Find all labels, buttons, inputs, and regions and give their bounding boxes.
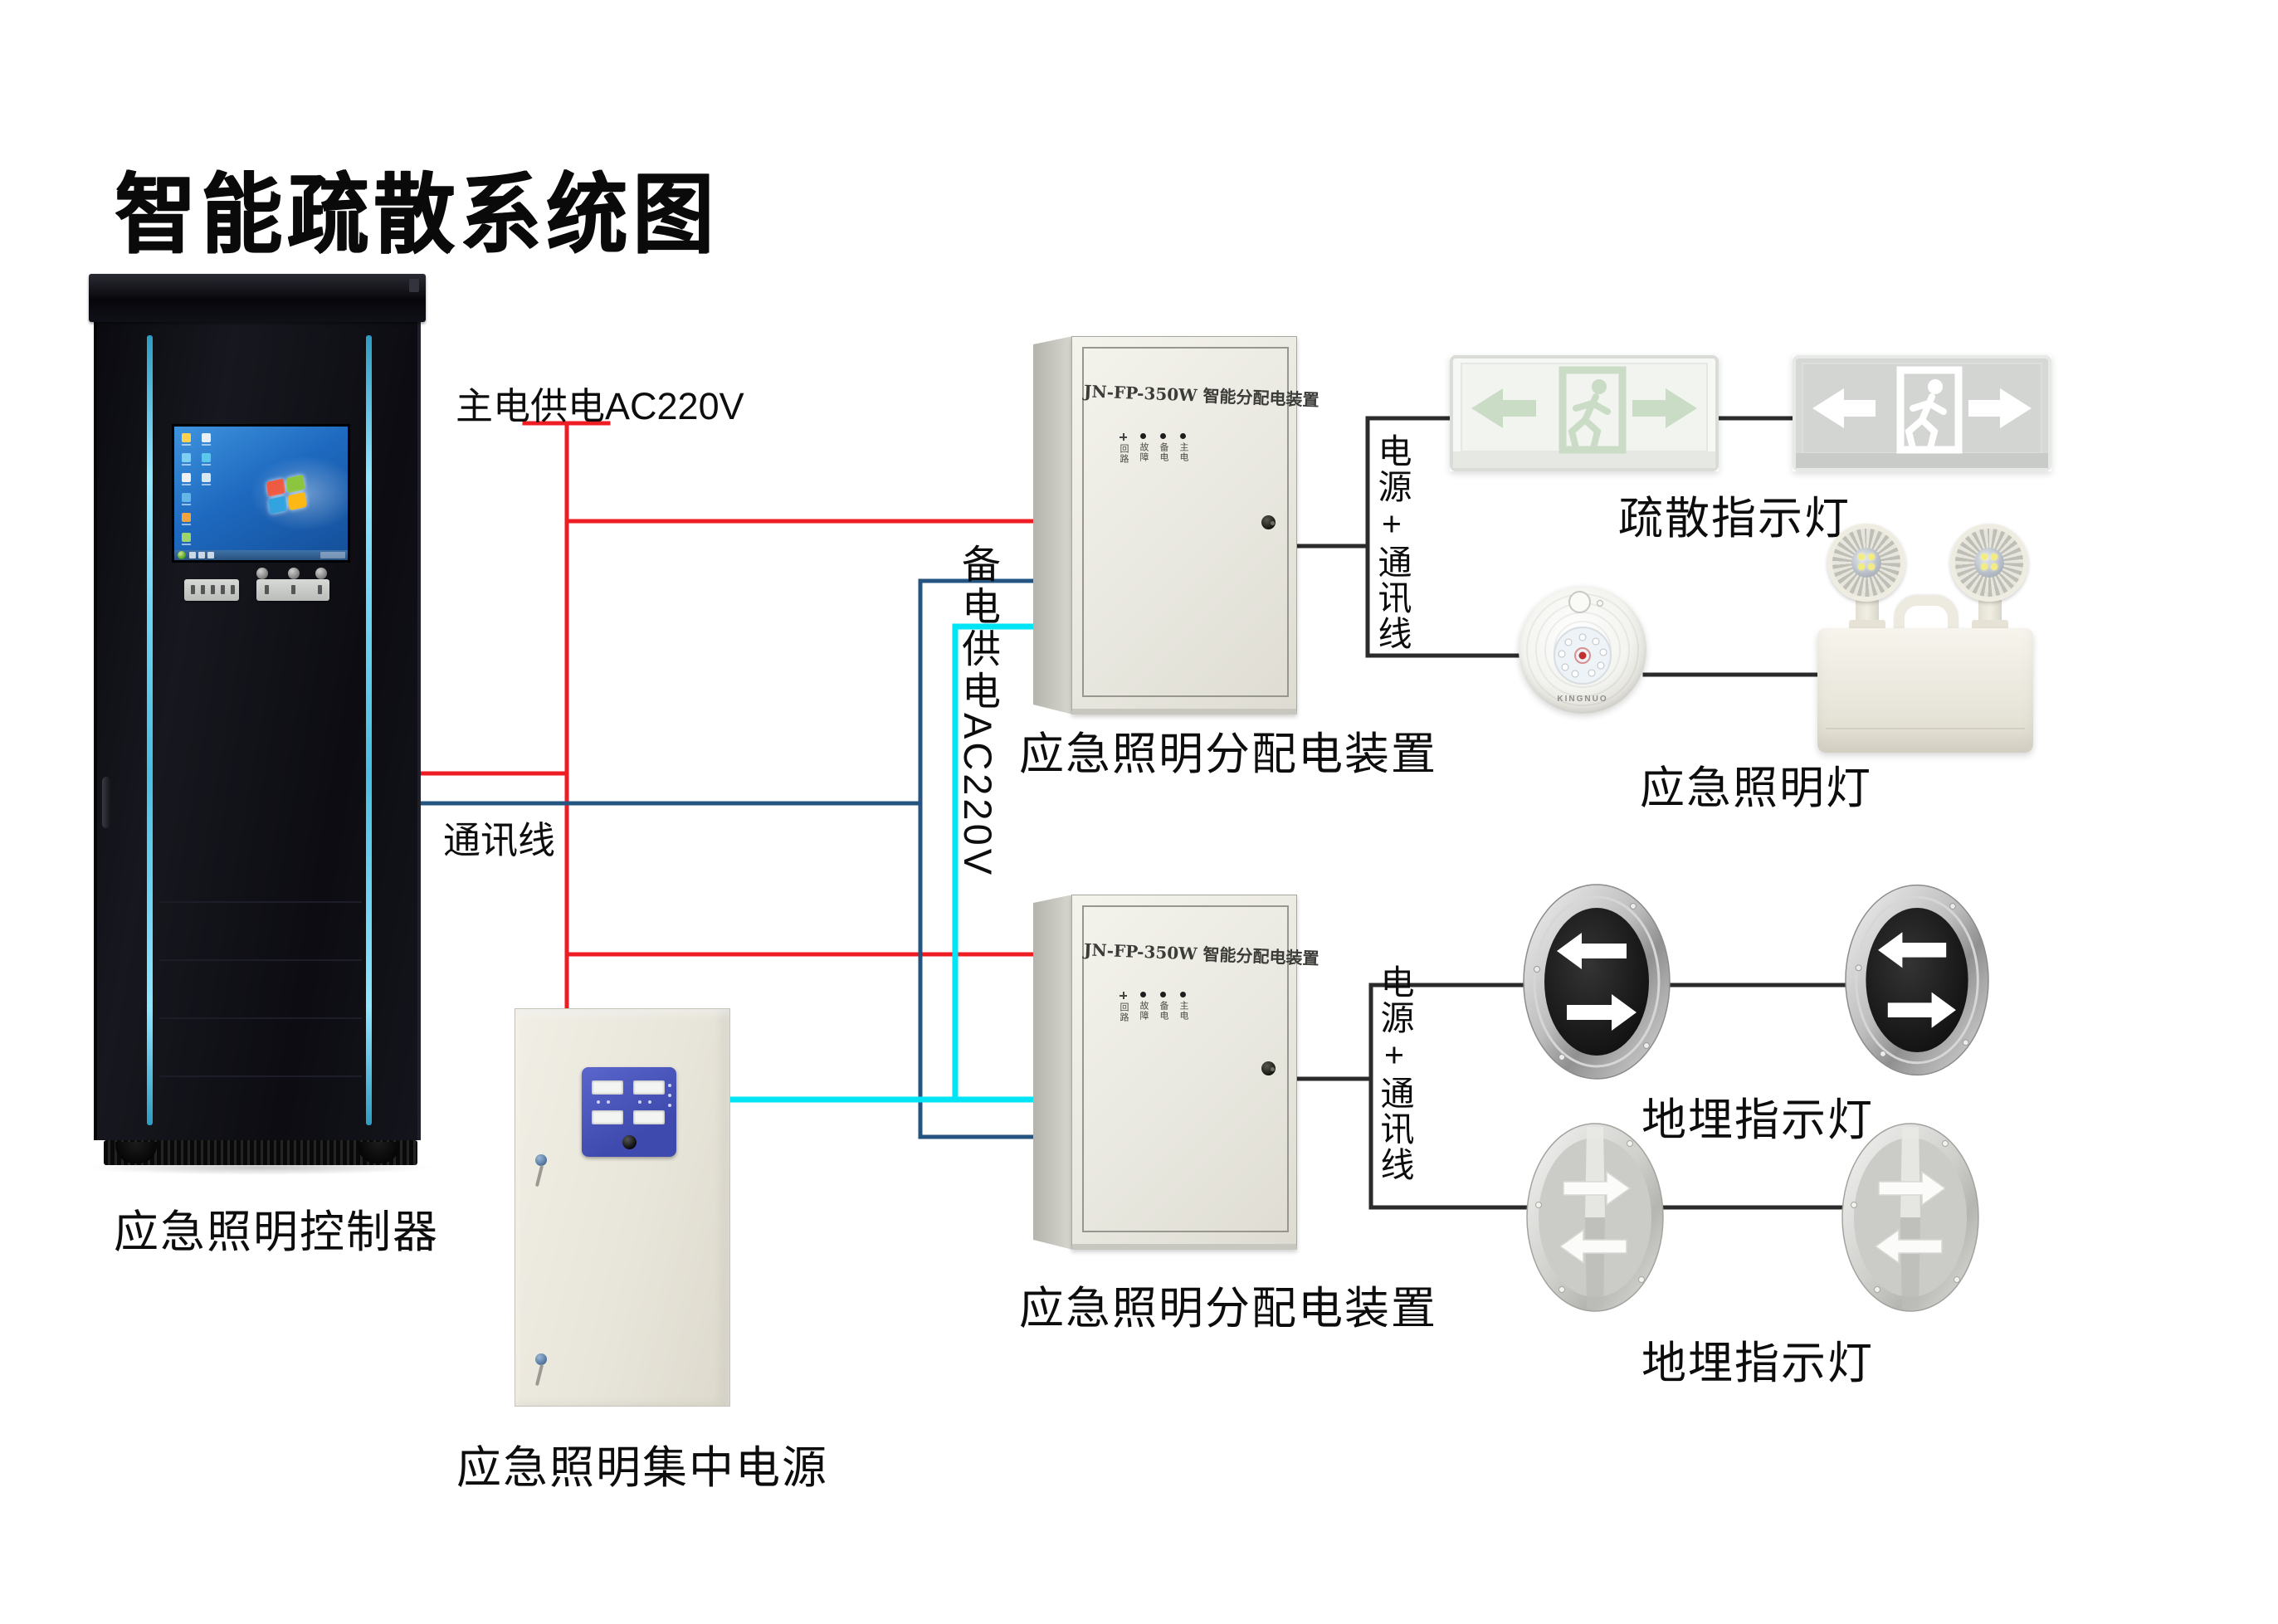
main-power-label: 主电供电AC220V [456, 376, 744, 430]
desktop-icon [202, 473, 211, 482]
screen-taskbar [174, 550, 348, 560]
ground-light-label-1: 地埋指示灯 [1641, 1083, 1874, 1149]
led-dot-icon [1140, 433, 1146, 439]
controller-label: 应急照明控制器 [114, 1195, 439, 1261]
ground-light-steel [1841, 1122, 1980, 1313]
lamp-reflector [1974, 548, 2004, 578]
indicator-label: 回路 [1119, 444, 1128, 464]
cabinet-top-cap [89, 274, 426, 322]
central-power-supply-box [515, 1008, 730, 1407]
cabinet-connector-panel [256, 579, 329, 601]
power-comm-label-2: 电源+通讯线 [1377, 964, 1411, 1197]
ground-light-steel [1525, 1122, 1665, 1313]
desktop-icon [182, 433, 191, 442]
comm-line-label: 通讯线 [443, 810, 555, 864]
main-power-wire [407, 423, 1040, 1008]
cabinet-shelf-line [159, 959, 362, 961]
cabinet-shelf-line [159, 1017, 362, 1019]
power-box-lock [535, 1154, 547, 1166]
start-orb-icon [178, 551, 186, 559]
lamp-reflector [1851, 548, 1881, 578]
dome-test-button [1568, 591, 1591, 613]
distribution-box-lock [1261, 1061, 1276, 1075]
ground-light-black [1844, 883, 1990, 1077]
evac-sign-label: 疏散指示灯 [1618, 481, 1851, 547]
windows-logo-icon [266, 475, 311, 516]
backup-power-label: 备电供电AC220V [959, 544, 998, 958]
cabinet-knob [315, 568, 327, 579]
distribution-box-side-panel [1033, 336, 1073, 714]
cabinet-connector-panel [184, 579, 239, 601]
indicator-label: 故障 [1139, 442, 1148, 462]
ground-light-label-2: 地埋指示灯 [1641, 1326, 1874, 1392]
distribution-box-indicators: 回路 故障 备电 主电 [1117, 992, 1189, 1022]
led-dot-icon [1180, 433, 1186, 439]
lamp-head-right [1950, 524, 2028, 602]
distribution-box-2: JN-FP-350W 智能分配电装置 回路 故障 备电 主电 [1033, 895, 1297, 1250]
distribution-box-1: JN-FP-350W 智能分配电装置 回路 故障 备电 主电 [1033, 336, 1297, 714]
ground-light-black [1522, 883, 1671, 1080]
cabinet-accent-strip-left [147, 335, 153, 1125]
lamp-head-left [1827, 524, 1905, 602]
indicator-label: 回路 [1119, 1002, 1128, 1022]
cabinet-top-knob [409, 279, 419, 292]
dome-brand-text: KINGNUO [1519, 695, 1646, 704]
indicator-label: 主电 [1178, 442, 1188, 462]
system-tray [320, 552, 345, 558]
indicator-label: 主电 [1178, 1001, 1188, 1021]
cabinet-door-handle [102, 777, 110, 828]
desktop-icon [182, 513, 191, 522]
plus-indicator-icon [1119, 992, 1127, 999]
desktop-icon [182, 493, 191, 502]
emergency-lamp-label: 应急照明灯 [1640, 751, 1872, 817]
indicator-label: 备电 [1159, 442, 1168, 462]
cabinet-knob [288, 568, 300, 579]
distribution-box-door: JN-FP-350W 智能分配电装置 回路 故障 备电 主电 [1071, 336, 1297, 714]
cabinet-accent-strip-right [366, 335, 372, 1125]
plus-indicator-icon [1119, 433, 1127, 441]
power-box-lock [535, 1353, 547, 1365]
power-supply-control-panel [582, 1067, 676, 1157]
cabinet-shelf-line [159, 1075, 362, 1077]
distribution-box-indicators: 回路 故障 备电 主电 [1117, 433, 1189, 464]
distribution-box-header: JN-FP-350W 智能分配电装置 [1084, 378, 1289, 409]
power-supply-knob [622, 1135, 637, 1149]
led-dot-icon [1180, 992, 1186, 997]
cabinet-body [94, 320, 421, 1140]
dome-emergency-lamp: KINGNUO [1519, 586, 1646, 714]
power-comm-label-1: 电源+通讯线 [1374, 433, 1408, 666]
distribution-box-side-panel [1033, 895, 1073, 1250]
led-dot-icon [1160, 992, 1166, 997]
desktop-icon [182, 473, 191, 482]
distribution-box-header: JN-FP-350W 智能分配电装置 [1084, 936, 1289, 968]
cabinet-knob [256, 568, 268, 579]
diagram-canvas: 智能疏散系统图 [0, 0, 2278, 1624]
central-power-label: 应急照明集中电源 [456, 1431, 828, 1496]
desktop-icon [202, 433, 211, 442]
twin-head-emergency-lamp [1817, 510, 2033, 753]
indicator-label: 备电 [1159, 1001, 1168, 1021]
cabinet-monitor-screen [172, 424, 350, 563]
cabinet-shelf-line [159, 901, 362, 903]
desktop-icon [182, 453, 191, 462]
emergency-lighting-controller-cabinet [94, 274, 421, 1178]
led-dot-icon [1160, 433, 1166, 439]
distribution-box-1-label: 应急照明分配电装置 [1019, 717, 1437, 783]
led-dot-icon [1140, 992, 1146, 997]
distribution-box-2-label: 应急照明分配电装置 [1019, 1271, 1437, 1337]
exit-sign-unlit [1793, 355, 2051, 471]
lamp-body [1817, 628, 2033, 753]
distribution-box-door: JN-FP-350W 智能分配电装置 回路 故障 备电 主电 [1071, 895, 1297, 1250]
desktop-icon [182, 533, 191, 542]
desktop-icon [202, 453, 211, 462]
distribution-box-lock [1261, 515, 1276, 529]
exit-sign-lit [1450, 355, 1719, 471]
indicator-label: 故障 [1139, 1001, 1148, 1021]
